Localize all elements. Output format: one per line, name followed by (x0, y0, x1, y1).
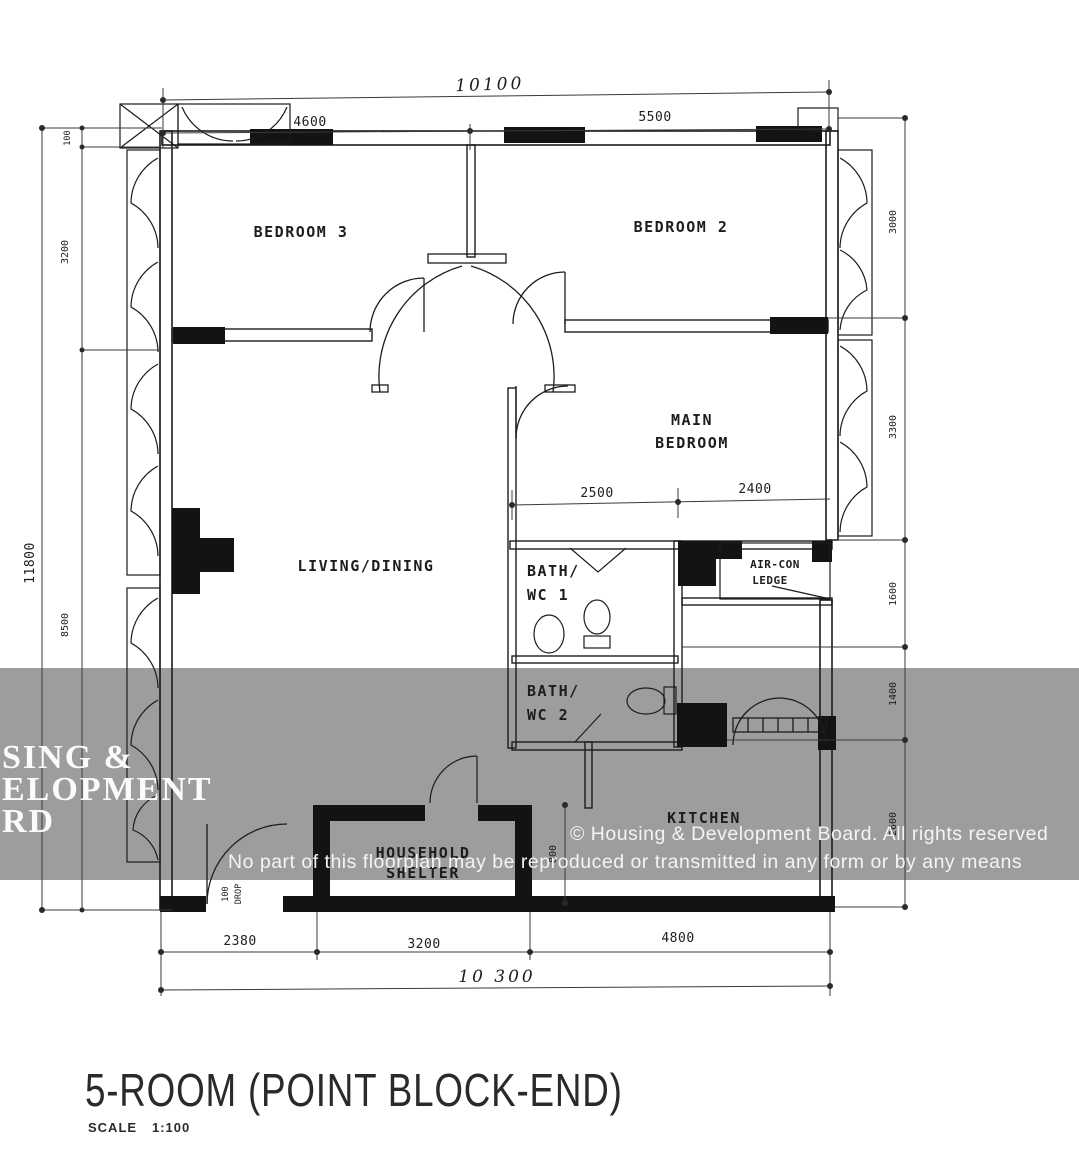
dim-top-right: 5500 (638, 110, 671, 125)
room-label-bedroom-2: BEDROOM 2 (634, 218, 729, 236)
dim-left-seg1: 100 (63, 130, 73, 145)
room-label-bath1-line2: WC 1 (527, 586, 569, 604)
dim-left-seg3: 8500 (60, 613, 71, 637)
room-label-main-bedroom-line2: BEDROOM (655, 434, 729, 452)
dim-right-seg1: 3000 (888, 210, 899, 234)
room-label-aircon-line2: LEDGE (752, 574, 788, 587)
room-label-bath2-line2: WC 2 (527, 706, 569, 724)
dim-main-bed-right: 2400 (738, 482, 771, 497)
room-label-bath1-line1: BATH/ (527, 562, 580, 580)
dim-bottom-seg2: 3200 (407, 937, 440, 952)
floor-plan-drawing: 10100 4600 5500 11800 100 3200 8500 3000… (0, 0, 1079, 1174)
page-title: 5-ROOM (POINT BLOCK-END) (85, 1064, 623, 1116)
dim-bottom-overall: 10 300 (458, 967, 535, 987)
dim-top-left: 4600 (293, 115, 326, 130)
room-label-bedroom-3: BEDROOM 3 (254, 223, 349, 241)
room-label-living-dining: LIVING/DINING (298, 557, 435, 575)
dim-bottom-seg1: 2380 (223, 934, 256, 949)
dim-right-seg2: 3300 (888, 415, 899, 439)
dim-right-seg3: 1600 (888, 582, 899, 606)
room-label-aircon-line1: AIR-CON (750, 558, 800, 571)
dim-main-bed-left: 2500 (580, 486, 613, 501)
dim-top-overall: 10100 (455, 74, 525, 96)
dim-bottom-seg3: 4800 (661, 931, 694, 946)
room-label-bath2-line1: BATH/ (527, 682, 580, 700)
scale-value: 1:100 (152, 1120, 190, 1135)
scale-label: SCALE (88, 1120, 137, 1135)
entrance-drop-note-line1: 100 (221, 886, 231, 901)
dim-left-seg2: 3200 (60, 240, 71, 264)
watermark-copyright: © Housing & Development Board. All right… (570, 823, 1048, 845)
entrance-drop-note-line2: DROP (234, 884, 244, 904)
floor-plan-page: 10100 4600 5500 11800 100 3200 8500 3000… (0, 0, 1079, 1174)
watermark-notice: No part of this floorplan may be reprodu… (228, 851, 1022, 873)
watermark-big-line3: RD (2, 803, 55, 840)
dim-right-seg4: 1400 (888, 682, 899, 706)
dim-left-overall: 11800 (23, 542, 38, 584)
title-block: 5-ROOM (POINT BLOCK-END) (85, 1064, 623, 1116)
room-label-main-bedroom-line1: MAIN (671, 411, 713, 429)
